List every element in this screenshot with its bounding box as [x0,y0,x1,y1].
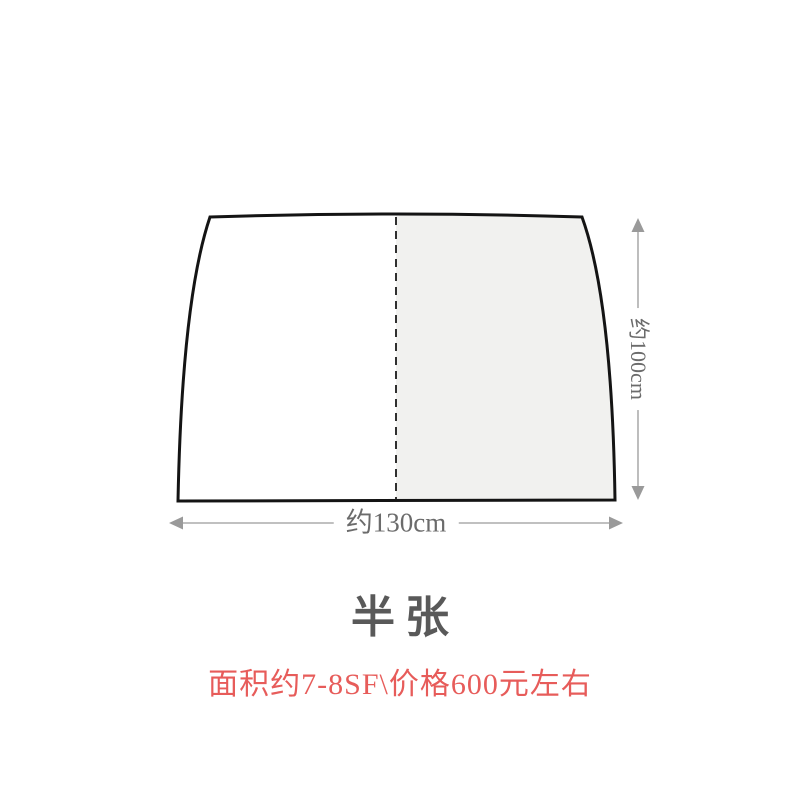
height-dimension-label: 约100cm [625,308,651,410]
arrow-right-head-icon [609,517,623,530]
hide-right-half-fill [396,214,615,501]
arrow-left-head-icon [169,517,183,530]
product-title: 半张 [0,596,800,640]
product-dimension-canvas: 约130cm 约100cm 半张 面积约7-8SF\价格600元左右 [0,0,800,800]
arrow-down-head-icon [632,486,645,500]
price-note: 面积约7-8SF\价格600元左右 [0,667,800,703]
arrow-up-head-icon [632,218,645,232]
width-dimension-label: 约130cm [334,508,459,539]
